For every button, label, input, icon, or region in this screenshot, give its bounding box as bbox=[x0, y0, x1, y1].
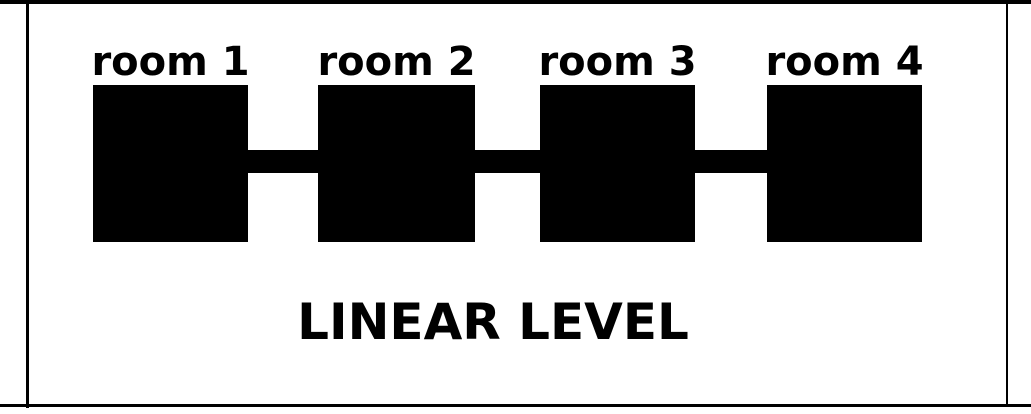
room-1-label: room 1 bbox=[91, 36, 249, 85]
corridor-room1-room2 bbox=[248, 150, 318, 173]
frame-border-bottom bbox=[0, 404, 1031, 407]
room-3-label: room 3 bbox=[538, 36, 696, 85]
linear-level-diagram: room 1 room 2 room 3 room 4 LINEAR LEVEL bbox=[0, 0, 1031, 414]
corridor-room3-room4 bbox=[695, 150, 767, 173]
corridor-room2-room3 bbox=[475, 150, 540, 173]
frame-border-top bbox=[0, 0, 1031, 4]
room-1-box bbox=[93, 85, 248, 242]
room-3-box bbox=[540, 85, 695, 242]
room-4-label: room 4 bbox=[765, 36, 923, 85]
frame-border-right bbox=[1006, 0, 1008, 407]
level-caption: LINEAR LEVEL bbox=[297, 293, 689, 351]
room-2-box bbox=[318, 85, 475, 242]
room-2-label: room 2 bbox=[317, 36, 475, 85]
room-4-box bbox=[767, 85, 922, 242]
frame-border-left bbox=[26, 0, 29, 408]
